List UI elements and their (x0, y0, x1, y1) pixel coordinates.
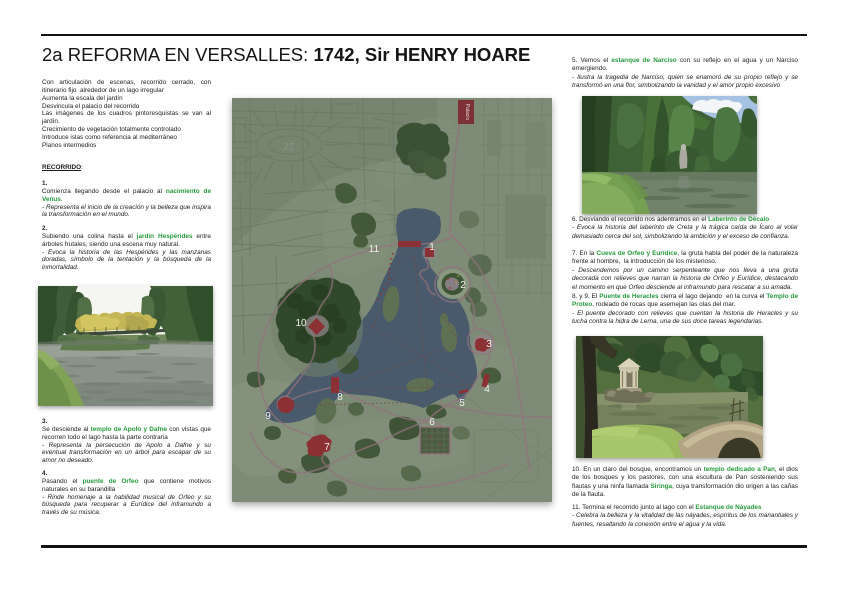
svg-text:10: 10 (295, 318, 307, 329)
svg-text:5: 5 (459, 398, 465, 409)
svg-text:2: 2 (460, 280, 466, 291)
svg-text:7: 7 (324, 442, 330, 453)
svg-text:11: 11 (369, 244, 380, 255)
svg-text:3: 3 (486, 339, 492, 350)
svg-text:22: 22 (283, 142, 295, 153)
svg-text:4: 4 (484, 384, 490, 395)
svg-text:6: 6 (429, 417, 435, 428)
svg-text:Palacio: Palacio (464, 104, 470, 121)
svg-text:9: 9 (265, 411, 271, 422)
svg-text:8: 8 (337, 392, 343, 403)
svg-text:1: 1 (429, 242, 435, 253)
